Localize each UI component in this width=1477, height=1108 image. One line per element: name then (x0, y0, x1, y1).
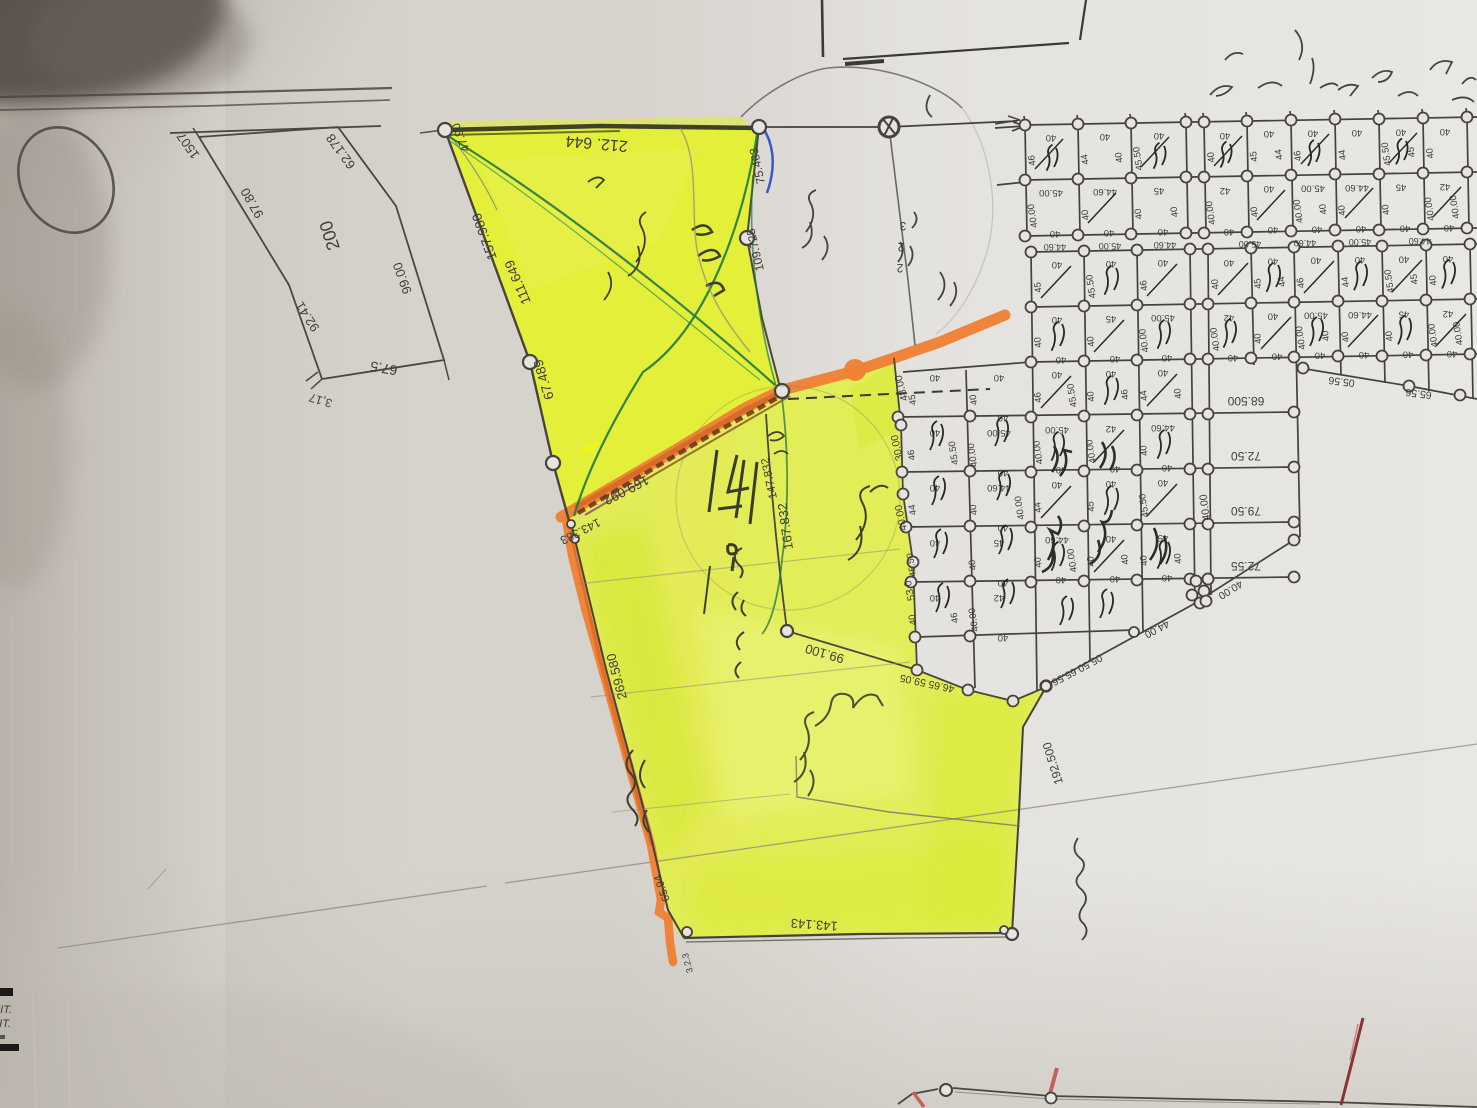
svg-text:45.00: 45.00 (1239, 239, 1262, 249)
svg-text:40: 40 (1104, 227, 1115, 238)
svg-text:40: 40 (1383, 330, 1396, 342)
svg-text:40: 40 (1158, 477, 1169, 488)
svg-text:42: 42 (1106, 423, 1117, 434)
svg-text:40: 40 (1106, 533, 1117, 544)
svg-text:45: 45 (1085, 500, 1098, 512)
svg-text:45: 45 (1252, 277, 1265, 289)
svg-text:MIT.: MIT. (0, 1018, 11, 1030)
svg-text:44.60: 44.60 (1044, 242, 1067, 252)
svg-text:45.00: 45.00 (1039, 187, 1063, 198)
svg-text:40: 40 (1440, 126, 1451, 137)
svg-text:40: 40 (1080, 209, 1093, 221)
svg-text:40: 40 (1050, 228, 1061, 239)
svg-text:46: 46 (949, 612, 962, 624)
svg-text:45: 45 (1154, 185, 1165, 196)
svg-text:40: 40 (1356, 223, 1367, 234)
svg-text:2: 2 (896, 261, 903, 275)
svg-text:40: 40 (1312, 224, 1323, 235)
svg-text:40: 40 (1317, 203, 1330, 215)
svg-text:40: 40 (1400, 222, 1411, 233)
svg-text:45.00: 45.00 (1304, 310, 1328, 321)
svg-text:42: 42 (1224, 312, 1235, 323)
svg-text:79.50: 79.50 (1231, 504, 1261, 518)
svg-text:40: 40 (1110, 573, 1121, 584)
svg-text:40: 40 (967, 559, 980, 571)
svg-text:40: 40 (1138, 554, 1151, 566)
svg-text:45.00: 45.00 (1301, 183, 1325, 194)
svg-text:40: 40 (1085, 335, 1098, 347)
svg-text:40: 40 (1138, 444, 1151, 456)
svg-text:40: 40 (1162, 572, 1173, 583)
svg-text:MIT.: MIT. (0, 1004, 12, 1016)
svg-text:44.60: 44.60 (1409, 236, 1432, 246)
svg-text:40: 40 (1209, 278, 1222, 290)
svg-text:40: 40 (1110, 353, 1121, 364)
svg-text:40: 40 (1272, 350, 1283, 361)
svg-text:40: 40 (998, 632, 1009, 643)
svg-text:40: 40 (1249, 206, 1262, 218)
svg-text:44: 44 (1032, 501, 1045, 513)
svg-text:40: 40 (1228, 352, 1239, 363)
svg-text:40: 40 (1172, 552, 1185, 564)
svg-text:40: 40 (1264, 183, 1275, 194)
svg-text:40: 40 (907, 614, 920, 626)
svg-text:40: 40 (1224, 257, 1235, 268)
svg-text:40: 40 (1315, 350, 1326, 361)
svg-text:45: 45 (1396, 181, 1407, 192)
svg-text:40: 40 (1154, 130, 1165, 141)
svg-text:40: 40 (1220, 130, 1231, 141)
svg-text:44: 44 (1337, 149, 1350, 161)
svg-text:40: 40 (1268, 255, 1279, 266)
svg-text:46: 46 (1295, 277, 1308, 289)
svg-text:40: 40 (1162, 462, 1173, 473)
svg-text:40: 40 (1113, 151, 1126, 163)
svg-text:40: 40 (1032, 556, 1045, 568)
svg-text:40: 40 (1403, 349, 1414, 360)
svg-text:44: 44 (1273, 148, 1286, 160)
svg-text:40: 40 (1355, 254, 1366, 265)
svg-text:40: 40 (1052, 259, 1063, 270)
svg-text:40: 40 (1052, 369, 1063, 380)
svg-text:42: 42 (1220, 185, 1231, 196)
svg-text:40: 40 (1100, 131, 1111, 142)
svg-text:46: 46 (1032, 391, 1045, 403)
svg-text:44: 44 (1138, 389, 1151, 401)
svg-text:40: 40 (1056, 354, 1067, 365)
svg-text:40: 40 (1399, 254, 1410, 265)
svg-text:40: 40 (1158, 226, 1169, 237)
svg-text:68.500: 68.500 (1227, 394, 1264, 408)
svg-text:40: 40 (1158, 367, 1169, 378)
svg-text:40: 40 (968, 504, 981, 516)
svg-text:44: 44 (907, 504, 920, 516)
svg-text:40: 40 (1085, 390, 1098, 402)
svg-text:45: 45 (1408, 273, 1421, 285)
svg-text:40: 40 (1396, 126, 1407, 137)
svg-text:46: 46 (1119, 388, 1132, 400)
svg-text:40: 40 (968, 394, 981, 406)
svg-text:45: 45 (1032, 281, 1045, 293)
svg-text:44.60: 44.60 (1294, 238, 1317, 248)
svg-text:45: 45 (1399, 309, 1410, 320)
svg-text:44: 44 (1340, 276, 1353, 288)
svg-text:40: 40 (1046, 132, 1057, 143)
svg-text:72.50: 72.50 (1231, 449, 1261, 463)
svg-text:40: 40 (1056, 574, 1067, 585)
svg-text:40: 40 (1311, 255, 1322, 266)
svg-text:46: 46 (1026, 154, 1039, 166)
svg-text:40: 40 (1352, 127, 1363, 138)
svg-text:40: 40 (1085, 555, 1098, 567)
svg-text:40: 40 (1224, 226, 1235, 237)
svg-text:40: 40 (1264, 128, 1275, 139)
svg-text:45.00: 45.00 (1349, 237, 1372, 247)
svg-text:40: 40 (1172, 387, 1185, 399)
svg-text:40: 40 (1340, 331, 1353, 343)
svg-text:72.55: 72.55 (1231, 559, 1261, 573)
svg-text:46: 46 (906, 449, 919, 461)
svg-text:40: 40 (1158, 257, 1169, 268)
svg-text:44.60: 44.60 (1345, 182, 1369, 193)
svg-text:45.00: 45.00 (1099, 241, 1122, 251)
svg-text:40: 40 (1162, 352, 1173, 363)
svg-text:45: 45 (1106, 313, 1117, 324)
svg-text:40: 40 (1268, 224, 1279, 235)
svg-text:40: 40 (1106, 368, 1117, 379)
svg-text:45: 45 (1248, 150, 1261, 162)
svg-text:40: 40 (1443, 253, 1454, 264)
svg-text:40: 40 (1252, 332, 1265, 344)
svg-text:46: 46 (1292, 150, 1305, 162)
svg-text:40: 40 (1444, 222, 1455, 233)
svg-text:44: 44 (1079, 153, 1092, 165)
svg-text:40: 40 (1424, 147, 1437, 159)
svg-text:44.60: 44.60 (1348, 309, 1372, 320)
svg-text:40: 40 (1205, 151, 1218, 163)
svg-text:40: 40 (1032, 336, 1045, 348)
svg-text:46: 46 (1138, 279, 1151, 291)
svg-text:40: 40 (1119, 553, 1132, 565)
svg-text:44.60: 44.60 (1154, 240, 1177, 250)
svg-text:3: 3 (899, 219, 906, 233)
svg-text:40: 40 (1427, 274, 1440, 286)
svg-text:42: 42 (1440, 181, 1451, 192)
svg-text:40: 40 (1106, 478, 1117, 489)
svg-text:40: 40 (1133, 208, 1146, 220)
svg-text:40: 40 (930, 372, 941, 383)
svg-text:42: 42 (1443, 308, 1454, 319)
svg-text:40: 40 (1106, 258, 1117, 269)
svg-text:40: 40 (1268, 310, 1279, 321)
svg-text:40: 40 (1336, 204, 1349, 216)
svg-text:42: 42 (994, 592, 1005, 603)
svg-text:40: 40 (1447, 348, 1458, 359)
svg-text:2: 2 (897, 240, 904, 254)
svg-text:40: 40 (1308, 128, 1319, 139)
svg-text:40: 40 (1169, 206, 1182, 218)
svg-text:40: 40 (1359, 349, 1370, 360)
svg-text:40: 40 (930, 537, 941, 548)
svg-text:40: 40 (994, 372, 1005, 383)
svg-text:40: 40 (1380, 204, 1393, 216)
svg-text:40: 40 (1052, 479, 1063, 490)
